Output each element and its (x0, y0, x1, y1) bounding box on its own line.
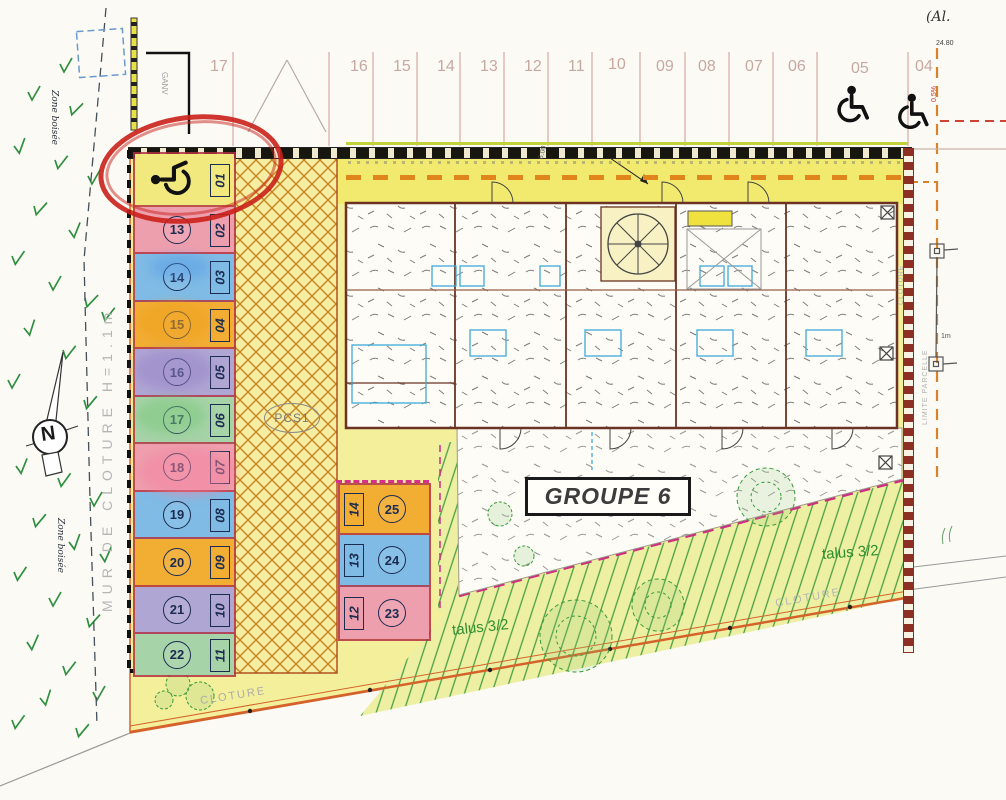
parking-stall-03: 14 03 (135, 254, 234, 302)
yellow-room-marker (688, 211, 732, 226)
parking-block-bottom: 14 25 13 24 12 23 (338, 483, 431, 641)
slope-label: 0.5% (931, 86, 938, 102)
stall-box-number: 04 (213, 318, 228, 332)
bay-triangle-mark (248, 60, 326, 132)
stall-box-number: 06 (213, 413, 228, 427)
stall-box-number: 14 (347, 502, 362, 516)
stall-circle-number: 24 (378, 546, 406, 574)
stall-circle-number: 16 (163, 358, 191, 386)
stall-box: 11 (210, 639, 230, 672)
wheelchair-icon (149, 159, 193, 203)
stall-box-number: 09 (213, 555, 228, 569)
stall-box: 05 (210, 356, 230, 389)
cloture-label: CLOTURE (898, 265, 905, 305)
parking-stall-24: 13 24 (340, 535, 429, 587)
annotation-small: GANV (160, 72, 168, 95)
parking-stall-02: 13 02 (135, 207, 234, 254)
stall-box: 14 (344, 493, 364, 526)
bay-number: 06 (788, 58, 806, 76)
bay-number: 13 (480, 58, 498, 76)
pcs1-label-ellipse: PCS1 (264, 403, 320, 433)
stall-box-number: 07 (213, 460, 228, 474)
stall-box: 02 (210, 214, 230, 247)
road-marking-band (128, 147, 912, 159)
parking-stall-05: 16 05 (135, 349, 234, 397)
stall-box-number: 12 (347, 606, 362, 620)
north-label: N (40, 423, 57, 445)
bay-number: 10 (608, 56, 626, 74)
stall-circle-number: 20 (163, 548, 191, 576)
tick-marks-row (348, 161, 906, 164)
parcel-boundary-right (903, 148, 914, 653)
wheelchair-icon (900, 94, 927, 128)
stall-box: 08 (210, 499, 230, 532)
cloture-wall-left (127, 150, 131, 673)
stall-box: 06 (210, 404, 230, 437)
bay-number: 14 (437, 58, 455, 76)
stall-box-number: 11 (213, 648, 228, 662)
spiral-staircase (601, 207, 675, 281)
parking-stall-23: 12 23 (340, 587, 429, 639)
limite-parcelle-label: LIMITE PARCELLE (922, 349, 929, 425)
parking-stall-09: 20 09 (135, 539, 234, 587)
stall-box: 13 (344, 544, 364, 577)
parking-stall-25: 14 25 (340, 485, 429, 535)
stall-box: 04 (210, 309, 230, 342)
stall-box-number: 10 (213, 603, 228, 617)
stall-circle-number: 22 (163, 641, 191, 669)
survey-markers (929, 244, 958, 371)
bay-number: 09 (656, 58, 674, 76)
bay-number: 15 (393, 58, 411, 76)
bay-number: 07 (745, 58, 763, 76)
bay-number: 17 (210, 58, 228, 76)
pcs1-label: PCS1 (274, 411, 309, 425)
bay-number: 08 (698, 58, 716, 76)
outer-boundary-line (0, 733, 130, 786)
stall-box: 07 (210, 451, 230, 484)
parking-stall-07: 18 07 (135, 444, 234, 492)
bay-number: 12 (524, 58, 542, 76)
small-scribble (942, 526, 952, 544)
stall-box-number: 13 (347, 553, 362, 567)
parking-stall-08: 19 08 (135, 492, 234, 539)
bay-number: 05 (851, 60, 869, 78)
stall-box: 03 (210, 261, 230, 294)
stall-box-number: 05 (213, 365, 228, 379)
stall-circle-number: 13 (163, 216, 191, 244)
grade-line-2 (908, 577, 1006, 590)
north-arrow-icon (26, 352, 78, 476)
stall-box: 01 (210, 164, 230, 197)
stall-circle-number: 14 (163, 263, 191, 291)
stall-box-number: 03 (213, 270, 228, 284)
stall-circle-number: 25 (378, 495, 406, 523)
parking-column-left: 01 13 02 14 03 15 04 16 05 17 06 18 07 1… (133, 152, 236, 677)
dimension-label: 24.80 (936, 40, 954, 47)
mur-cloture-label: MUR DE CLOTURE H=1.1m (100, 307, 114, 612)
zone-boisee-label: Zone boisée (49, 90, 58, 145)
bay-number: 04 (915, 58, 933, 76)
wheelchair-icon (839, 86, 867, 121)
yellow-green-line (346, 142, 908, 145)
grade-line-1 (905, 556, 1006, 568)
parking-stall-10: 21 10 (135, 587, 234, 634)
bay-number: 16 (350, 58, 368, 76)
stall-box: 12 (344, 597, 364, 630)
orange-dashed-line (346, 175, 908, 180)
parking-stall-04: 15 04 (135, 302, 234, 349)
zone-boisee-label: Zone boisée (55, 518, 64, 573)
stall-circle-number: 23 (378, 599, 406, 627)
parking-stall-01-handicap: 01 (135, 154, 234, 207)
stall-box-number: 02 (213, 223, 228, 237)
bay-number: 11 (568, 58, 585, 76)
stall-box: 10 (210, 594, 230, 627)
stall-box-number: 01 (213, 173, 228, 187)
marker-dimension-label: 1m (941, 333, 951, 340)
stall-circle-number: 15 (163, 311, 191, 339)
stall-circle-number: 18 (163, 453, 191, 481)
stall-box-number: 08 (213, 508, 228, 522)
stall-circle-number: 21 (163, 596, 191, 624)
parking-stall-06: 17 06 (135, 397, 234, 444)
handwritten-note: (Al. (926, 10, 951, 24)
stall-circle-number: 19 (163, 501, 191, 529)
site-plan-page: 01 13 02 14 03 15 04 16 05 17 06 18 07 1… (0, 0, 1006, 800)
stall-circle-number: 17 (163, 406, 191, 434)
groupe-6-label: GROUPE 6 (545, 483, 672, 510)
talus-label: talus 3/2 (822, 543, 880, 562)
talus-strip (438, 442, 458, 612)
parking-stall-11: 22 11 (135, 634, 234, 675)
stall-box: 09 (210, 546, 230, 579)
groupe-6-title-box: GROUPE 6 (525, 477, 691, 516)
